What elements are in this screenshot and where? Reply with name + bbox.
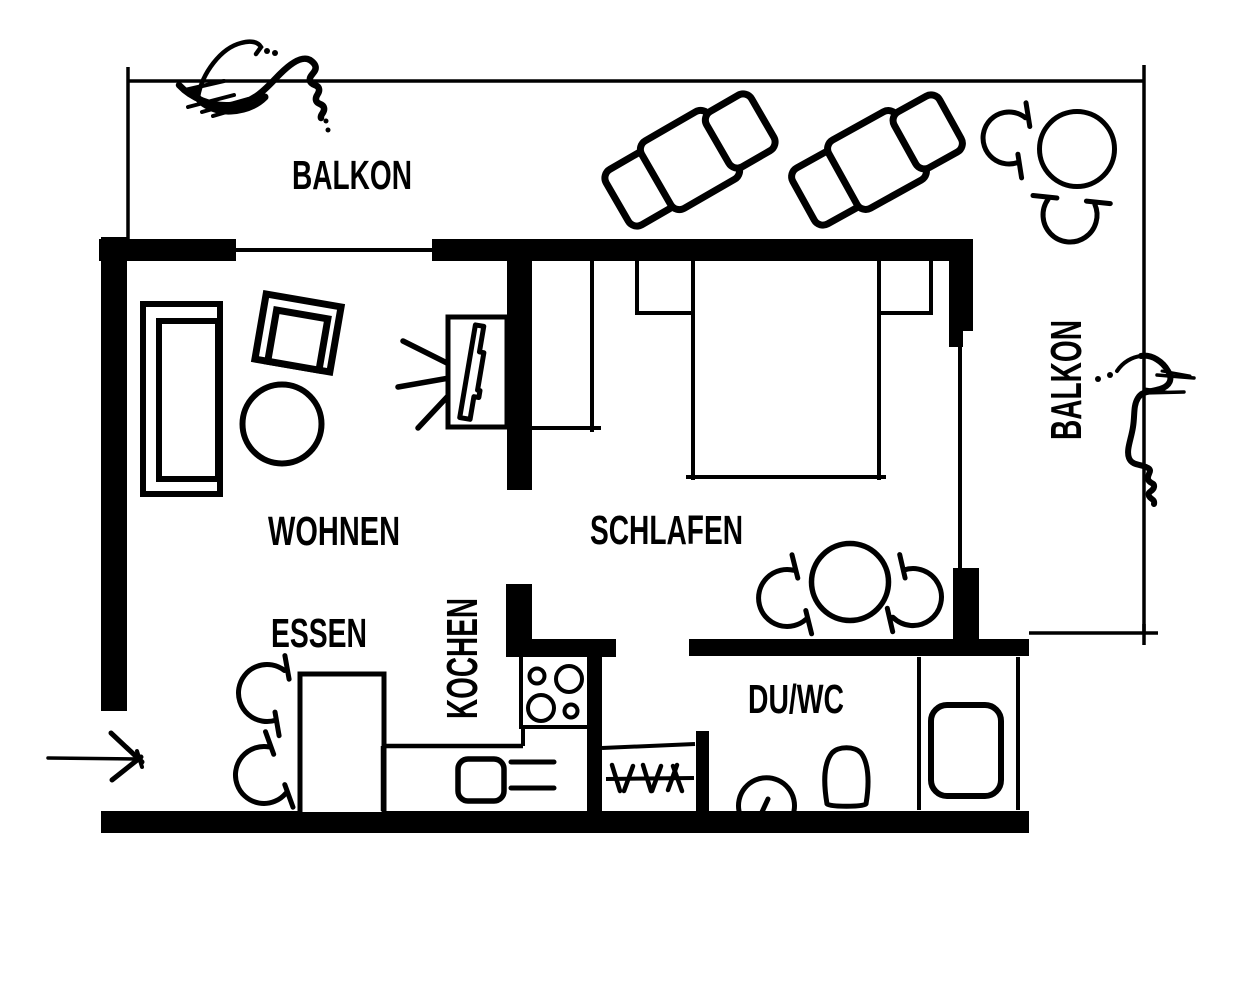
svg-text:BALKON: BALKON [1042,320,1091,440]
svg-text:BALKON: BALKON [292,152,412,198]
svg-text:ESSEN: ESSEN [271,610,367,656]
svg-text:KOCHEN: KOCHEN [438,598,487,719]
svg-text:DU/WC: DU/WC [748,676,844,722]
svg-text:SCHLAFEN: SCHLAFEN [590,507,743,553]
svg-text:WOHNEN: WOHNEN [268,508,400,554]
